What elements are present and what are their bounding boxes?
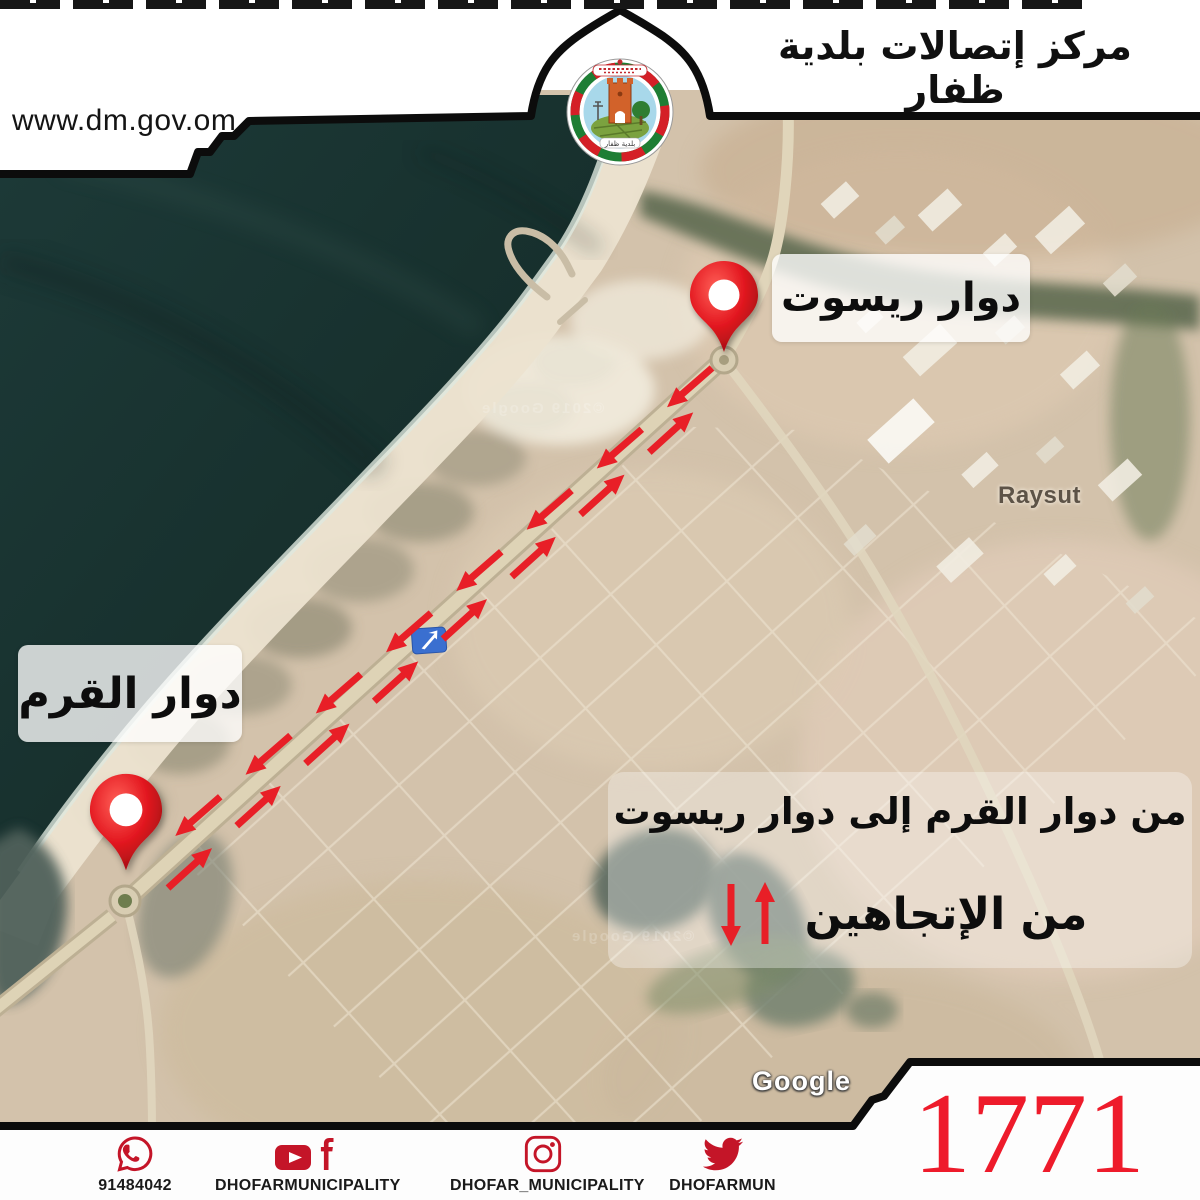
imagery-watermark: ©2019 Google (480, 400, 604, 417)
youtube-facebook-handle: DHOFARMUNICIPALITY (215, 1177, 400, 1195)
route-annotation-line2: من الإتجاهين (608, 868, 1192, 960)
cropped-text-strip (0, 0, 1085, 9)
instagram-icon (450, 1134, 635, 1174)
logo-banner-text: بلدية ظفار (604, 140, 636, 148)
route-annotation-panel: من دوار القرم إلى دوار ريسوت من الإتجاهي… (608, 772, 1192, 968)
google-logo-watermark: Google (752, 1066, 851, 1097)
page-title: مركز إتصالات بلدية ظفار (745, 24, 1165, 112)
raysut-place-label: Raysut (998, 482, 1081, 510)
instagram-handle: DHOFAR_MUNICIPALITY (450, 1177, 635, 1195)
navigation-arrow-shield (411, 627, 447, 654)
municipality-logo: بلدية ظفار (567, 59, 673, 165)
social-twitter: DHOFARMUN (640, 1134, 805, 1195)
raysut-label-panel: دوار ريسوت (772, 254, 1030, 342)
social-youtube-facebook: DHOFARMUNICIPALITY (215, 1134, 400, 1195)
social-whatsapp: 91484042 (55, 1134, 215, 1195)
whatsapp-number: 91484042 (55, 1177, 215, 1195)
twitter-handle: DHOFARMUN (640, 1177, 805, 1195)
hotline-number: 1771 (868, 1076, 1190, 1192)
qurm-label: دوار القرم (18, 669, 241, 719)
twitter-icon (640, 1134, 805, 1174)
youtube-facebook-icon (215, 1134, 400, 1174)
website-url: www.dm.gov.om (12, 104, 272, 138)
whatsapp-icon (55, 1134, 215, 1174)
qurm-label-panel: دوار القرم (18, 645, 242, 742)
social-instagram: DHOFAR_MUNICIPALITY (450, 1134, 635, 1195)
poster-canvas: بلدية ظفار www.dm.gov.om مركز إتصالات بل… (0, 0, 1200, 1200)
route-annotation-line1: من دوار القرم إلى دوار ريسوت (608, 790, 1192, 833)
two-way-arrows-icon (713, 874, 785, 954)
route-annotation-direction-text: من الإتجاهين (805, 889, 1088, 940)
map-satellite-graphic: بلدية ظفار (0, 0, 1200, 1200)
raysut-label: دوار ريسوت (781, 275, 1021, 321)
